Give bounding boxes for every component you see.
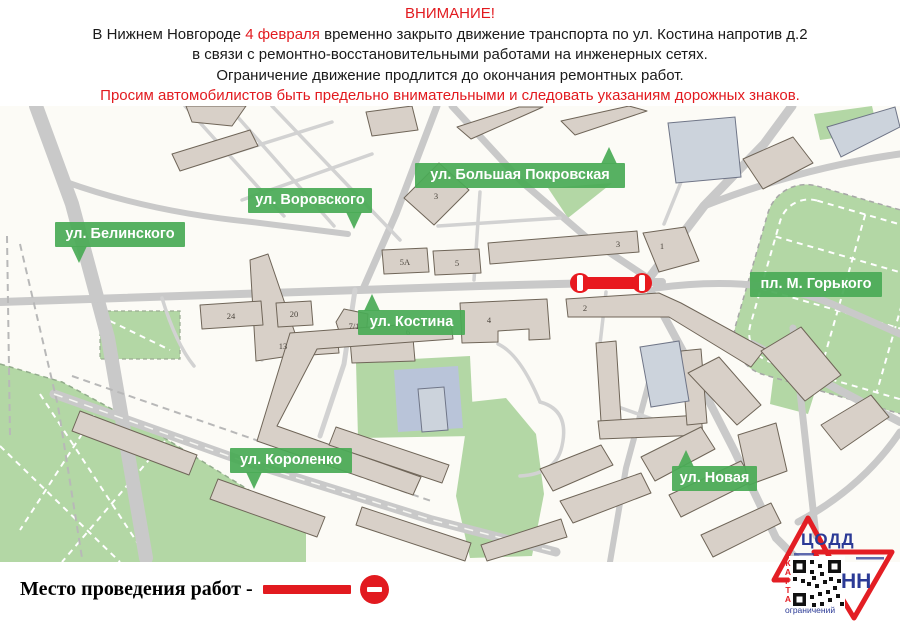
qr-caption: ограничений (785, 605, 835, 615)
street-badge-kostina: ул. Костина (358, 310, 465, 335)
notice-header: ВНИМАНИЕ! В Нижнем Новгороде 4 февраля в… (0, 4, 900, 107)
street-badge-belinskogo: ул. Белинского (55, 222, 185, 247)
no-entry-bar (367, 587, 382, 592)
logo-org-name: ЦОДД (801, 530, 855, 550)
no-entry-icon (360, 575, 389, 604)
logo-smalltext-right (856, 557, 884, 560)
street-badge-gorkogo: пл. М. Горького (750, 272, 882, 297)
street-badge-korolenko: ул. Короленко (230, 448, 352, 473)
badge-pointer (71, 246, 87, 263)
building-number: 2 (583, 303, 587, 313)
logo-city: НН (841, 570, 871, 594)
building-number: 1 (660, 241, 664, 251)
logo-smalltext-left (794, 553, 814, 556)
badge-pointer (601, 147, 617, 164)
street-badge-vorovskogo: ул. Воровского (248, 188, 372, 213)
badge-pointer (246, 472, 262, 489)
building-number: 5А (400, 257, 410, 267)
building-number: 5 (455, 258, 459, 268)
closure-line-swatch (263, 585, 351, 594)
notice-line-2: в связи с ремонтно-восстановительными ра… (0, 45, 900, 66)
badge-pointer (678, 450, 694, 467)
qr-code (789, 556, 845, 610)
building-number: 3 (434, 191, 438, 201)
codd-logo: ЦОДД НН КАРТА ограничений (758, 502, 900, 624)
line1-suffix: временно закрыто движение транспорта по … (320, 26, 808, 43)
notice-line-3: Ограничение движение продлится до оконча… (0, 66, 900, 87)
street-badge-novaya: ул. Новая (672, 466, 757, 491)
building-number: 20 (290, 309, 299, 319)
road-closure-notice: ВНИМАНИЕ! В Нижнем Новгороде 4 февраля в… (0, 0, 900, 624)
notice-line-4: Просим автомобилистов быть предельно вни… (0, 86, 900, 107)
legend: Место проведения работ - (20, 572, 389, 606)
closure-date: 4 февраля (245, 26, 320, 43)
street-badge-bolshaya-pokrovskaya: ул. Большая Покровская (415, 163, 625, 188)
building-number: 3 (616, 239, 620, 249)
line1-prefix: В Нижнем Новгороде (92, 26, 245, 43)
qr-side-label: КАРТА (783, 559, 793, 604)
building-number: 4 (487, 315, 491, 325)
badge-pointer (364, 294, 380, 311)
building-number: 13 (279, 341, 288, 351)
notice-title: ВНИМАНИЕ! (0, 4, 900, 25)
legend-label: Место проведения работ - (20, 578, 253, 601)
city-map: ул. Белинскогоул. Воровскогоул. Большая … (0, 106, 900, 562)
notice-line-1: В Нижнем Новгороде 4 февраля временно за… (0, 25, 900, 46)
building-number: 24 (227, 311, 236, 321)
badge-pointer (346, 212, 362, 229)
